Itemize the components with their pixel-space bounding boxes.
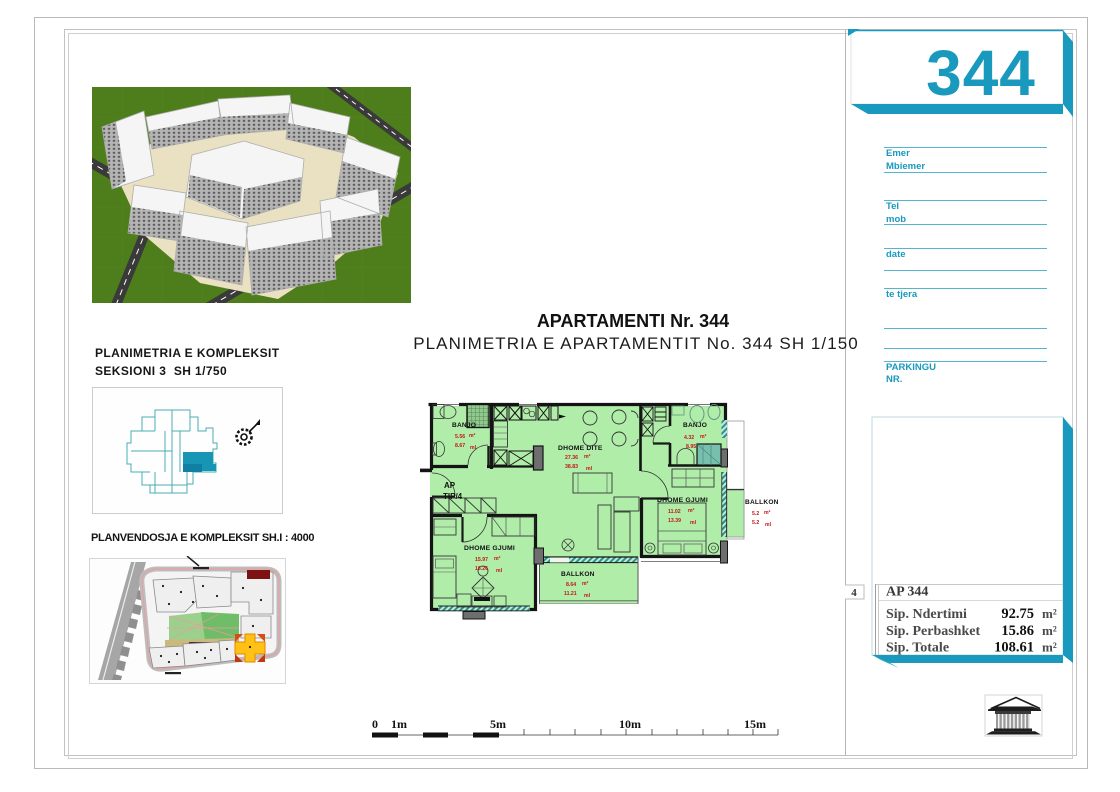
svg-text:5.2: 5.2: [752, 520, 759, 526]
svg-text:Sip. Ndertimi: Sip. Ndertimi: [886, 607, 967, 622]
svg-text:4.32: 4.32: [684, 435, 694, 441]
svg-text:11.21: 11.21: [564, 591, 577, 597]
svg-text:DHOME GJUMI: DHOME GJUMI: [464, 545, 515, 552]
svg-text:AP: AP: [444, 481, 456, 490]
svg-text:ml: ml: [586, 466, 593, 472]
svg-text:m²: m²: [1042, 606, 1057, 621]
svg-text:m²: m²: [1042, 623, 1057, 638]
svg-text:4: 4: [851, 587, 857, 599]
svg-text:ml: ml: [584, 593, 591, 599]
svg-text:m²: m²: [494, 556, 501, 562]
svg-text:344: 344: [926, 37, 1036, 109]
svg-text:Emer: Emer: [886, 148, 910, 159]
svg-text:5m: 5m: [490, 717, 506, 731]
svg-text:11.02: 11.02: [668, 509, 681, 515]
svg-text:m²: m²: [764, 510, 771, 516]
svg-text:BALLKON: BALLKON: [745, 499, 779, 506]
svg-text:m²: m²: [469, 433, 476, 439]
svg-text:16.26: 16.26: [475, 566, 488, 572]
svg-text:1m: 1m: [391, 717, 407, 731]
svg-text:8.64: 8.64: [566, 582, 576, 588]
svg-text:5.56: 5.56: [455, 434, 465, 440]
svg-text:DHOME DITE: DHOME DITE: [558, 445, 603, 452]
svg-text:108.61: 108.61: [994, 640, 1034, 656]
svg-text:Sip. Totale: Sip. Totale: [886, 641, 949, 656]
svg-text:ml: ml: [470, 445, 477, 451]
svg-text:NR.: NR.: [886, 374, 902, 385]
svg-text:Sip. Perbashket: Sip. Perbashket: [886, 624, 980, 639]
svg-text:BANJO: BANJO: [452, 422, 476, 429]
svg-text:15.86: 15.86: [1001, 623, 1034, 639]
svg-text:date: date: [886, 249, 906, 260]
svg-text:13.39: 13.39: [668, 518, 681, 524]
svg-text:AP 344: AP 344: [886, 585, 928, 600]
svg-text:92.75: 92.75: [1001, 606, 1034, 622]
svg-text:8.67: 8.67: [455, 443, 465, 449]
svg-text:ml: ml: [690, 520, 697, 526]
svg-text:PARKINGU: PARKINGU: [886, 362, 936, 373]
svg-text:27.36: 27.36: [565, 455, 578, 461]
svg-text:15m: 15m: [744, 717, 766, 731]
svg-text:10m: 10m: [619, 717, 641, 731]
svg-text:ml: ml: [496, 568, 503, 574]
svg-text:ml: ml: [765, 522, 772, 528]
svg-text:0: 0: [372, 717, 378, 731]
svg-text:m²: m²: [700, 434, 707, 440]
svg-text:m²: m²: [584, 454, 591, 460]
svg-text:mob: mob: [886, 214, 906, 225]
svg-text:TIP/4: TIP/4: [443, 492, 463, 501]
svg-text:38.83: 38.83: [565, 464, 578, 470]
svg-text:BALLKON: BALLKON: [561, 571, 595, 578]
svg-text:15.97: 15.97: [475, 557, 488, 563]
svg-text:m²: m²: [1042, 640, 1057, 655]
svg-text:m²: m²: [582, 581, 589, 587]
svg-text:m²: m²: [688, 508, 695, 514]
svg-text:Mbiemer: Mbiemer: [886, 161, 925, 172]
svg-text:Tel: Tel: [886, 201, 899, 212]
svg-text:5.2: 5.2: [752, 511, 759, 517]
svg-text:BANJO: BANJO: [683, 422, 707, 429]
svg-text:te tjera: te tjera: [886, 289, 918, 300]
